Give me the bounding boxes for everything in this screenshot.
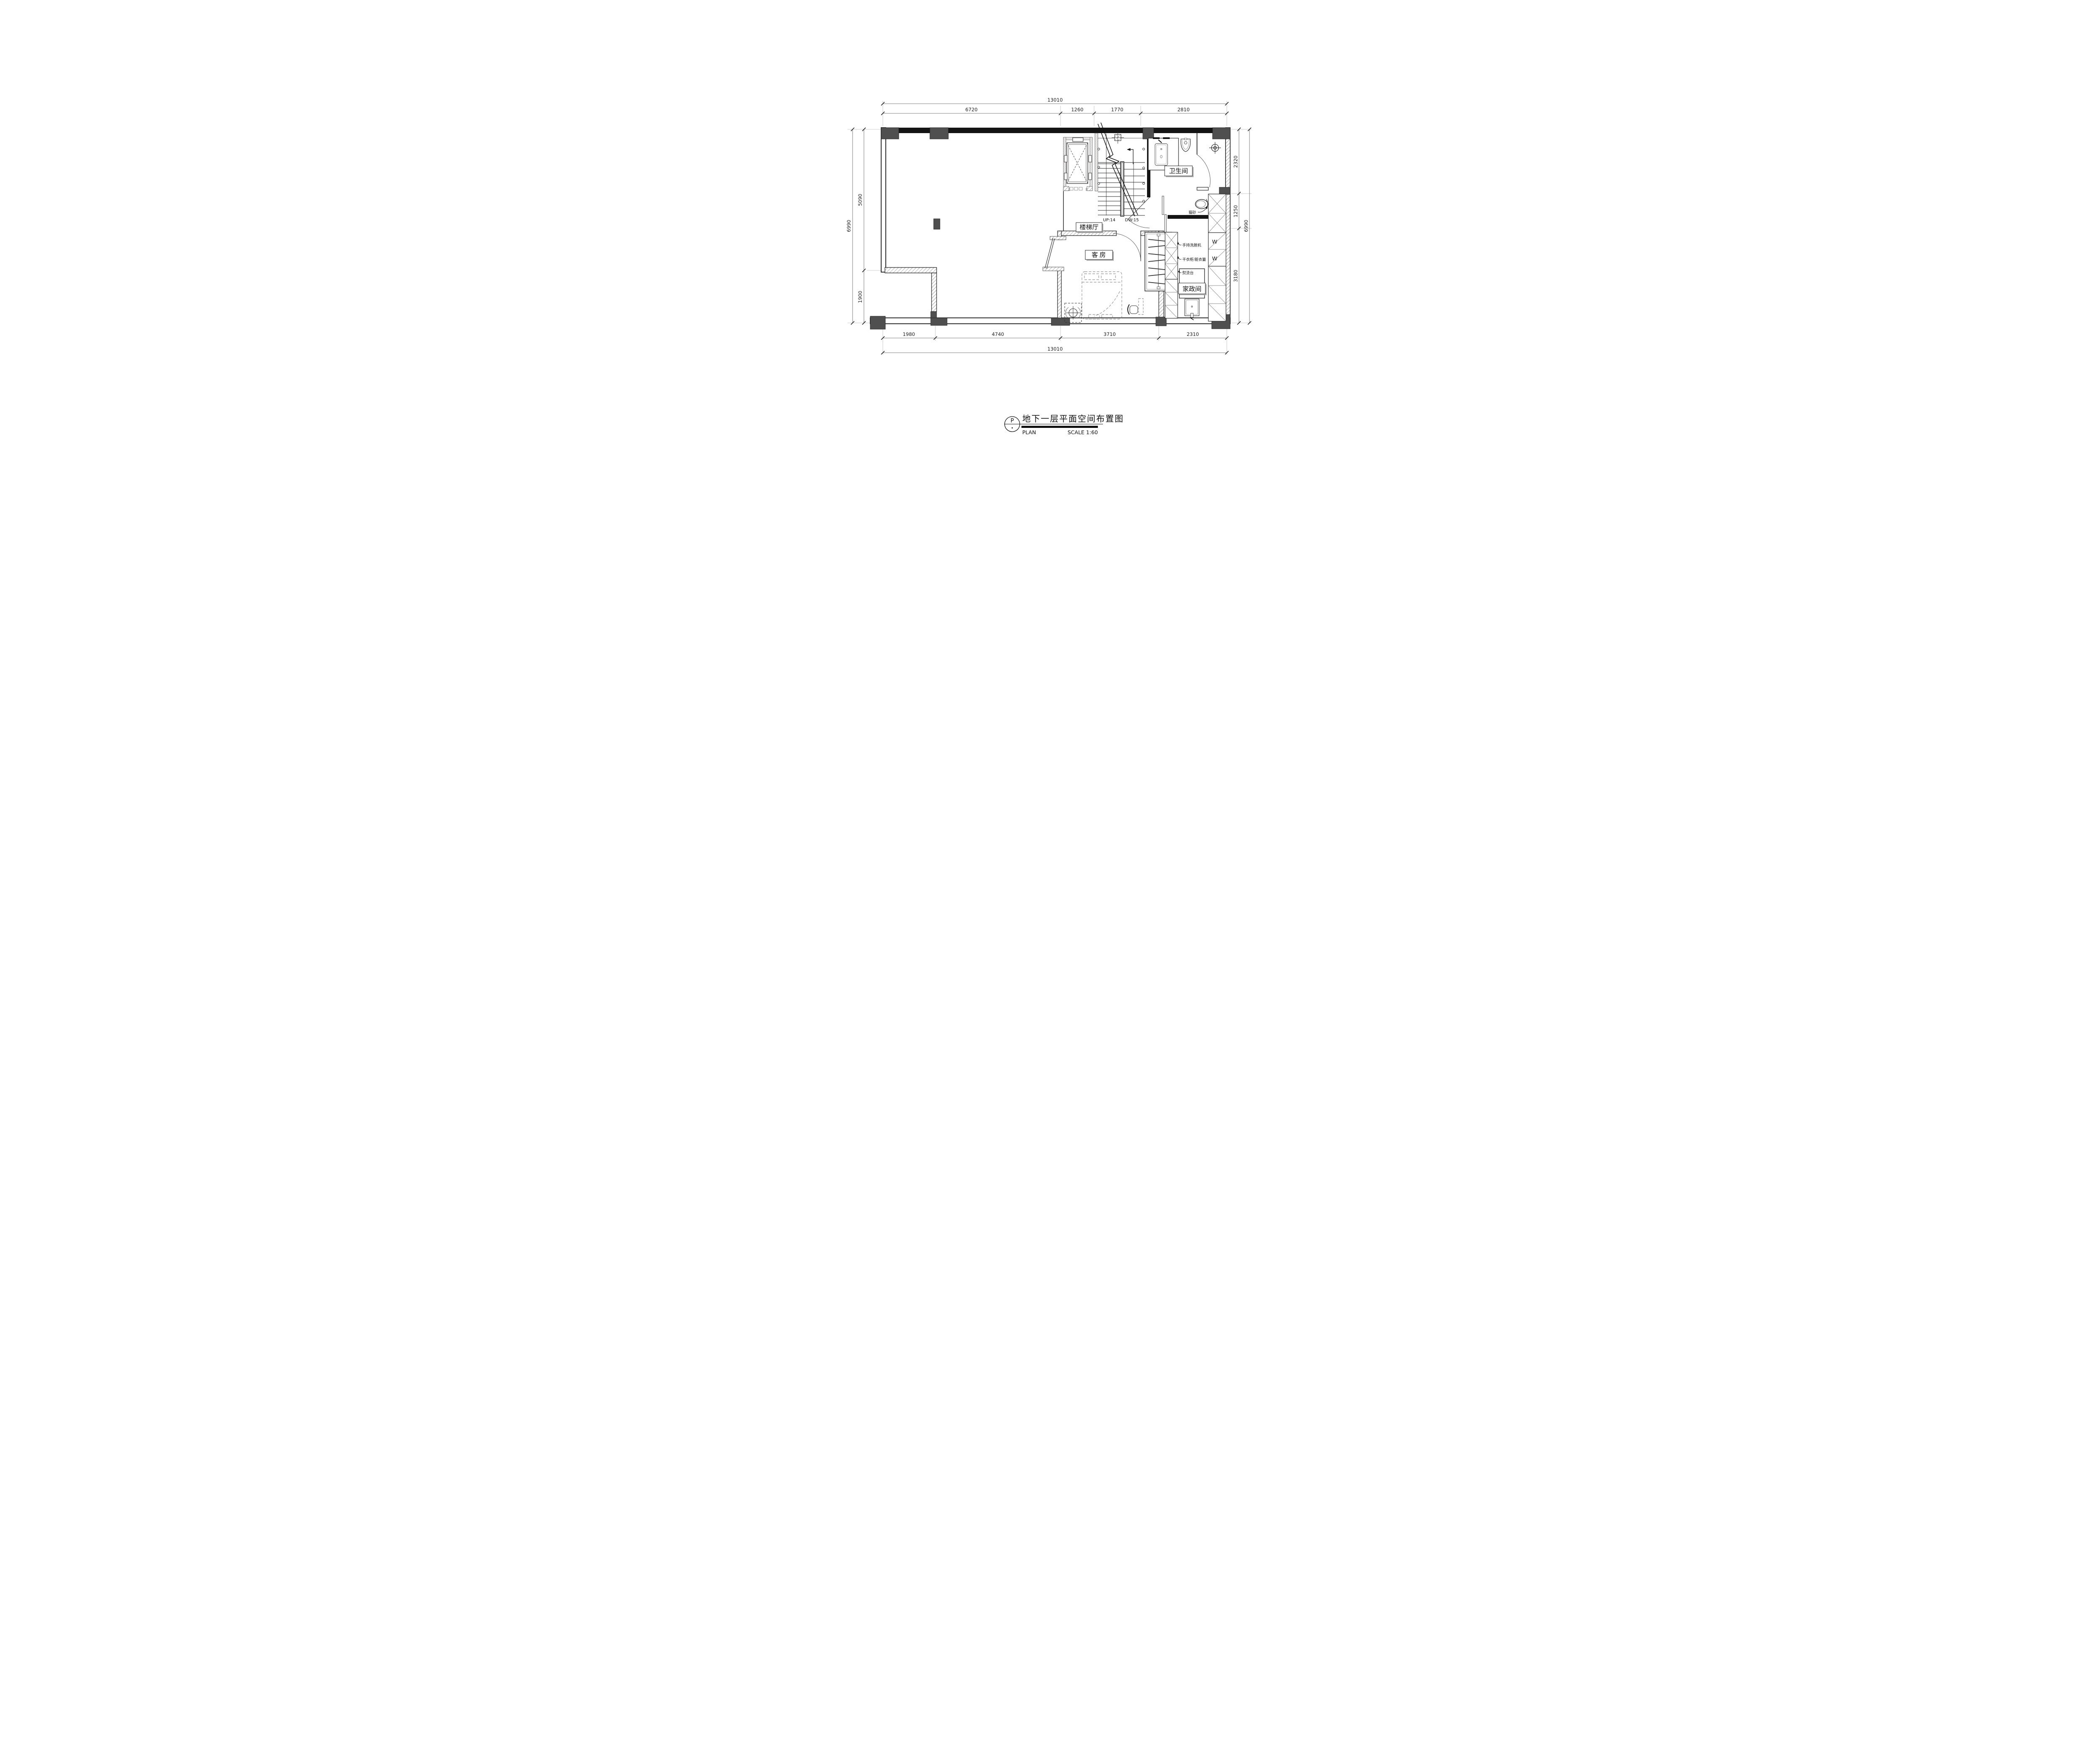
room-label-bathroom: 卫生间 — [1165, 166, 1194, 177]
wall-bathroom-south — [1168, 215, 1208, 219]
stair-direction-arrow — [1127, 149, 1133, 164]
stair-down-label: DW:15 — [1125, 218, 1139, 223]
dim-top-seg-1: 6720 — [965, 107, 977, 113]
room-label-guest: 客 房 — [1085, 250, 1114, 261]
dim-bottom-seg-2: 4740 — [992, 331, 1004, 337]
wall-guestroom-west-lower — [1058, 269, 1061, 318]
cabinet-west-tall — [1165, 232, 1178, 279]
column — [931, 318, 947, 325]
room-label-stair-hall: 楼梯厅 — [1076, 223, 1103, 233]
stair-up-label: UP:14 — [1103, 218, 1115, 223]
dim-bottom-seg-4: 2310 — [1186, 331, 1199, 337]
scale-label: SCALE 1:60 — [1068, 429, 1098, 435]
low-wall — [1197, 187, 1208, 190]
column — [1156, 317, 1166, 326]
svg-text:干衣柜/脏衣篓: 干衣柜/脏衣篓 — [1182, 257, 1206, 262]
column — [1051, 318, 1070, 325]
dim-right-overall: 6990 — [1243, 220, 1249, 232]
title-block: P 地下一层平面空间布置图 PLAN SCALE 1:60 — [1004, 414, 1124, 435]
bathroom: 卫生间 — [1128, 133, 1221, 228]
elevator — [1063, 137, 1092, 191]
column — [1213, 128, 1230, 139]
svg-text:家政间: 家政间 — [1182, 286, 1201, 293]
dim-bottom: 1980 4740 3710 2310 13010 — [881, 326, 1228, 355]
dim-top-seg-2: 1260 — [1071, 107, 1083, 113]
stair-handrail — [1121, 162, 1124, 216]
dim-left: 5090 1900 6990 — [846, 128, 882, 325]
plan-marker-letter: P — [1011, 418, 1014, 424]
dim-top-overall: 13010 — [1047, 97, 1063, 103]
dim-left-overall: 6990 — [846, 220, 852, 232]
dim-right-seg-2: 1250 — [1233, 205, 1239, 217]
wall-notch-horizontal — [885, 267, 937, 273]
dim-bottom-overall: 13010 — [1047, 346, 1063, 352]
svg-text:楼梯厅: 楼梯厅 — [1079, 224, 1098, 231]
desk-chair — [1128, 299, 1143, 315]
wall-left — [881, 128, 886, 272]
dim-right: 2320 1250 3180 6990 — [1231, 128, 1252, 325]
svg-text:手持洗脱机: 手持洗脱机 — [1182, 243, 1201, 247]
column — [930, 128, 948, 139]
svg-text:熨烫台: 熨烫台 — [1182, 270, 1194, 275]
dim-right-seg-1: 2320 — [1233, 155, 1239, 168]
corner-basin — [1181, 138, 1191, 152]
guest-room: 客 房 — [1043, 232, 1172, 322]
column — [931, 312, 937, 319]
column — [870, 316, 885, 329]
cabinet-west-lower — [1165, 279, 1178, 318]
dim-bottom-seg-1: 1980 — [903, 331, 915, 337]
annotation-handheld-washer: 手持洗脱机 — [1178, 242, 1202, 247]
washer-bottom-label: W — [1212, 255, 1217, 262]
cabinet-cat-litter — [1208, 194, 1226, 233]
dim-left-seg-1: 5090 — [857, 194, 863, 206]
wall-right — [1226, 128, 1230, 323]
title-bar — [1021, 426, 1098, 428]
svg-text:卫生间: 卫生间 — [1169, 168, 1188, 175]
dim-left-seg-2: 1900 — [857, 291, 863, 303]
cabinet-east-lower — [1208, 266, 1226, 321]
sliding-door-laundry — [1162, 196, 1166, 233]
drawing-title: 地下一层平面空间布置图 — [1022, 414, 1124, 424]
dim-top-seg-4: 2810 — [1177, 107, 1189, 113]
column-freestanding — [934, 219, 940, 229]
dim-top-seg-3: 1770 — [1111, 107, 1123, 113]
column — [881, 128, 899, 139]
svg-text:猫砂: 猫砂 — [1189, 210, 1196, 215]
vanity-sink — [1155, 144, 1168, 165]
floor-plan-drawing: 13010 6720 1260 1770 2810 1980 4740 3710… — [785, 0, 1315, 440]
room-label-laundry: 家政间 — [1179, 283, 1207, 295]
toilet — [1195, 199, 1208, 209]
column — [1219, 187, 1230, 194]
laundry-room: W W 家政间 猫砂 手持洗脱机 — [1162, 194, 1226, 321]
guest-room-door — [1113, 233, 1141, 261]
laundry-sink — [1185, 299, 1199, 320]
floor-plan-sheet: 13010 6720 1260 1770 2810 1980 4740 3710… — [785, 0, 1315, 440]
wall-stair-stipple — [1095, 133, 1098, 191]
sliding-door-guest-west — [1043, 236, 1066, 271]
dim-right-seg-3: 3180 — [1233, 270, 1239, 282]
annotation-drying-cabinet: 干衣柜/脏衣篓 — [1178, 256, 1206, 262]
washer-top-label: W — [1212, 239, 1217, 245]
wall-bottom — [870, 318, 1230, 324]
dim-bottom-seg-3: 3710 — [1103, 331, 1116, 337]
dim-top: 13010 6720 1260 1770 2810 — [881, 97, 1228, 126]
washer-stack: W W — [1208, 233, 1226, 266]
column — [1143, 128, 1154, 139]
svg-text:客 房: 客 房 — [1092, 252, 1106, 259]
wall-notch-vertical — [932, 273, 937, 312]
bed — [1082, 272, 1122, 319]
shower-drain — [1209, 142, 1221, 154]
elevator-counterweight — [1073, 138, 1083, 142]
plan-label: PLAN — [1022, 429, 1036, 435]
